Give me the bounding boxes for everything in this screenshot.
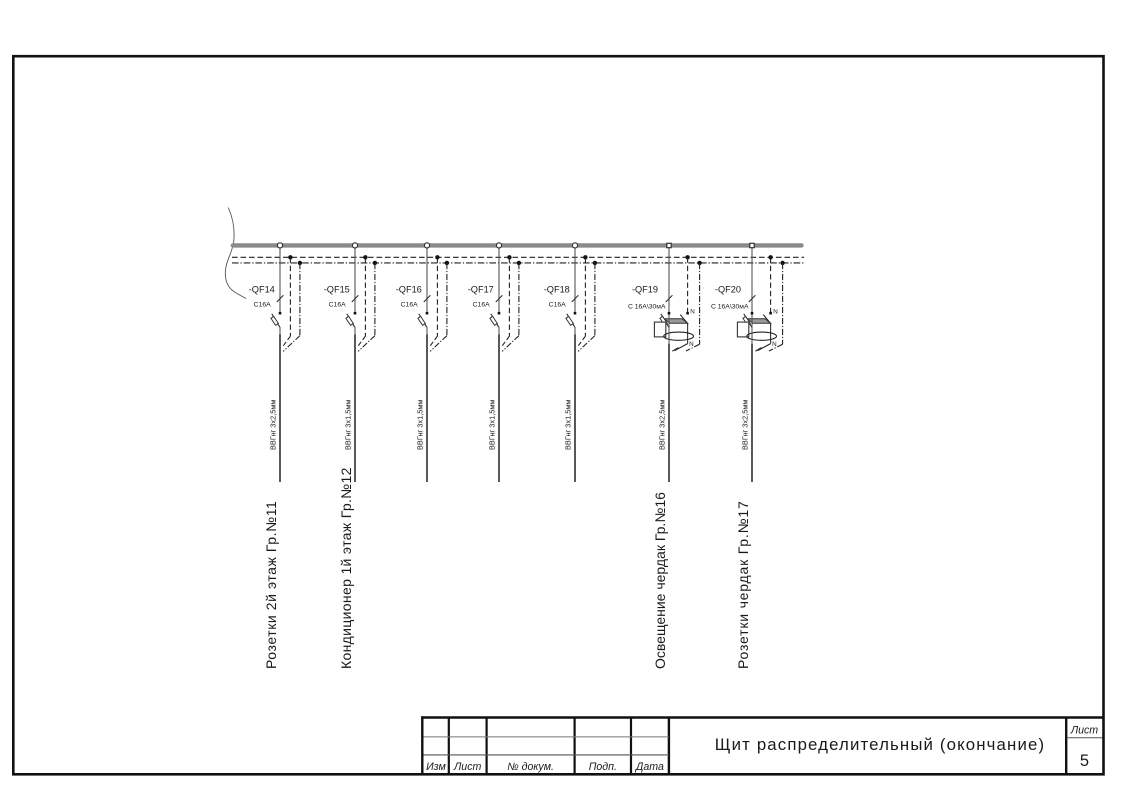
svg-text:Щит распределительный (окончан: Щит распределительный (окончание) (715, 735, 1045, 754)
svg-text:ВВГнг 3х1,5мм: ВВГнг 3х1,5мм (344, 399, 353, 450)
svg-text:C16A: C16A (549, 302, 566, 309)
svg-text:ВВГнг 3х1,5мм: ВВГнг 3х1,5мм (488, 399, 497, 450)
svg-text:N: N (690, 309, 695, 316)
svg-text:-QF15: -QF15 (324, 285, 350, 295)
svg-text:Лист: Лист (453, 761, 481, 773)
svg-text:ВВГнг 3х2,5мм: ВВГнг 3х2,5мм (269, 399, 278, 450)
svg-text:ВВГнг 3х2,5мм: ВВГнг 3х2,5мм (741, 399, 750, 450)
svg-text:ВВГнг 3х1,5мм: ВВГнг 3х1,5мм (416, 399, 425, 450)
svg-text:C16A: C16A (401, 302, 418, 309)
svg-text:N: N (773, 309, 778, 316)
svg-text:-QF16: -QF16 (396, 285, 422, 295)
svg-text:Лист: Лист (1070, 725, 1098, 737)
svg-text:N: N (689, 341, 694, 348)
svg-text:Дата: Дата (635, 761, 664, 773)
svg-text:Изм: Изм (426, 761, 446, 773)
svg-text:С 16А\30мА: С 16А\30мА (628, 304, 666, 311)
svg-text:№ докум.: № докум. (507, 761, 554, 773)
svg-text:N: N (772, 341, 777, 348)
svg-text:-QF14: -QF14 (249, 285, 275, 295)
svg-text:ВВГнг 3х2,5мм: ВВГнг 3х2,5мм (658, 399, 667, 450)
svg-text:-QF18: -QF18 (544, 285, 570, 295)
svg-text:C16A: C16A (254, 302, 271, 309)
svg-text:Розетки чердак Гр.№17: Розетки чердак Гр.№17 (735, 500, 751, 669)
svg-text:Кондиционер 1й этаж Гр.№12: Кондиционер 1й этаж Гр.№12 (338, 467, 354, 669)
svg-text:-QF17: -QF17 (468, 285, 494, 295)
svg-text:C16A: C16A (473, 302, 490, 309)
svg-text:С 16А\30мА: С 16А\30мА (711, 304, 749, 311)
svg-text:-QF20: -QF20 (715, 285, 741, 295)
svg-text:-QF19: -QF19 (632, 285, 658, 295)
svg-text:Освещение чердак Гр.№16: Освещение чердак Гр.№16 (652, 492, 668, 669)
svg-text:Подп.: Подп. (589, 761, 617, 773)
svg-text:Розетки 2й этаж Гр.№11: Розетки 2й этаж Гр.№11 (263, 501, 279, 669)
svg-text:5: 5 (1080, 752, 1089, 770)
svg-text:C16A: C16A (329, 302, 346, 309)
svg-text:ВВГнг 3х1,5мм: ВВГнг 3х1,5мм (564, 399, 573, 450)
